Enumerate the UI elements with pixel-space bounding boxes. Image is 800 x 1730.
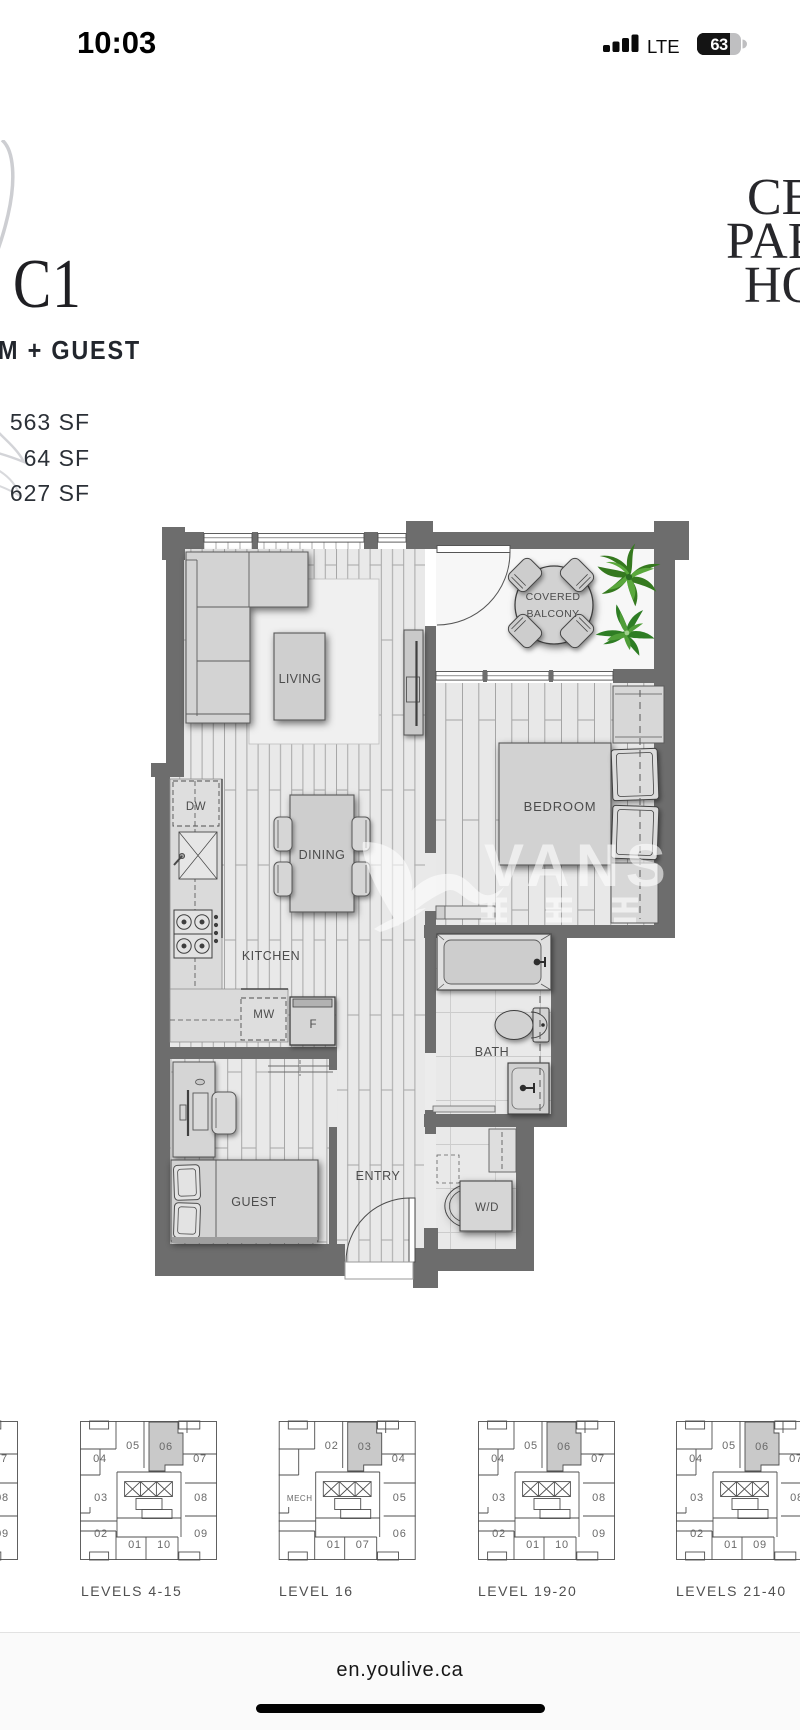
svg-text:05: 05 — [393, 1492, 407, 1504]
svg-text:07: 07 — [591, 1453, 605, 1465]
svg-text:09: 09 — [753, 1539, 767, 1551]
svg-text:03: 03 — [492, 1492, 506, 1504]
svg-text:06: 06 — [393, 1528, 407, 1540]
svg-text:W/D: W/D — [475, 1202, 499, 1214]
svg-text:LEVELS 4-15: LEVELS 4-15 — [81, 1583, 182, 1599]
svg-text:LIVING: LIVING — [279, 672, 322, 686]
svg-text:02: 02 — [690, 1528, 704, 1540]
svg-text:08: 08 — [592, 1492, 606, 1504]
svg-text:MECH: MECH — [287, 1494, 313, 1503]
svg-text:03: 03 — [690, 1492, 704, 1504]
svg-text:09: 09 — [0, 1528, 9, 1540]
svg-text:LEVELS 21-40: LEVELS 21-40 — [676, 1583, 787, 1599]
svg-text:07: 07 — [356, 1539, 370, 1551]
svg-text:09: 09 — [194, 1528, 208, 1540]
svg-text:05: 05 — [524, 1440, 538, 1452]
svg-text:04: 04 — [689, 1453, 703, 1465]
svg-text:VANSKY: VANSKY — [484, 832, 769, 899]
svg-text:05: 05 — [126, 1440, 140, 1452]
svg-text:10: 10 — [157, 1539, 171, 1551]
svg-text:01: 01 — [724, 1539, 738, 1551]
svg-text:02: 02 — [325, 1440, 339, 1452]
svg-text:10: 10 — [555, 1539, 569, 1551]
svg-text:06: 06 — [755, 1441, 769, 1453]
svg-text:08: 08 — [790, 1492, 800, 1504]
svg-text:GUEST: GUEST — [231, 1195, 277, 1209]
svg-text:07: 07 — [193, 1453, 207, 1465]
svg-text:07: 07 — [0, 1453, 8, 1465]
svg-text:04: 04 — [93, 1453, 107, 1465]
svg-text:COVERED: COVERED — [526, 591, 581, 603]
svg-text:01: 01 — [128, 1539, 142, 1551]
svg-text:LEVEL 16: LEVEL 16 — [279, 1583, 354, 1599]
svg-text:09: 09 — [592, 1528, 606, 1540]
svg-text:ENTRY: ENTRY — [356, 1169, 401, 1183]
svg-text:DINING: DINING — [299, 848, 346, 862]
svg-text:01: 01 — [327, 1539, 341, 1551]
svg-text:04: 04 — [491, 1453, 505, 1465]
svg-text:BATH: BATH — [475, 1045, 509, 1059]
svg-text:02: 02 — [492, 1528, 506, 1540]
svg-text:LEVEL 19-20: LEVEL 19-20 — [478, 1583, 577, 1599]
svg-text:02: 02 — [94, 1528, 108, 1540]
svg-text:03: 03 — [94, 1492, 108, 1504]
svg-text:08: 08 — [0, 1492, 9, 1504]
svg-text:06: 06 — [159, 1441, 173, 1453]
svg-text:01: 01 — [526, 1539, 540, 1551]
svg-text:BEDROOM: BEDROOM — [524, 799, 597, 814]
svg-text:05: 05 — [722, 1440, 736, 1452]
svg-text:08: 08 — [194, 1492, 208, 1504]
svg-text:DW: DW — [186, 801, 206, 813]
svg-text:BALCONY: BALCONY — [527, 608, 580, 620]
svg-text:MW: MW — [253, 1009, 274, 1021]
svg-text:07: 07 — [789, 1453, 800, 1465]
svg-text:KITCHEN: KITCHEN — [242, 949, 300, 963]
svg-text:03: 03 — [358, 1441, 372, 1453]
svg-text:04: 04 — [392, 1453, 406, 1465]
svg-text:06: 06 — [557, 1441, 571, 1453]
svg-text:F: F — [309, 1019, 316, 1031]
